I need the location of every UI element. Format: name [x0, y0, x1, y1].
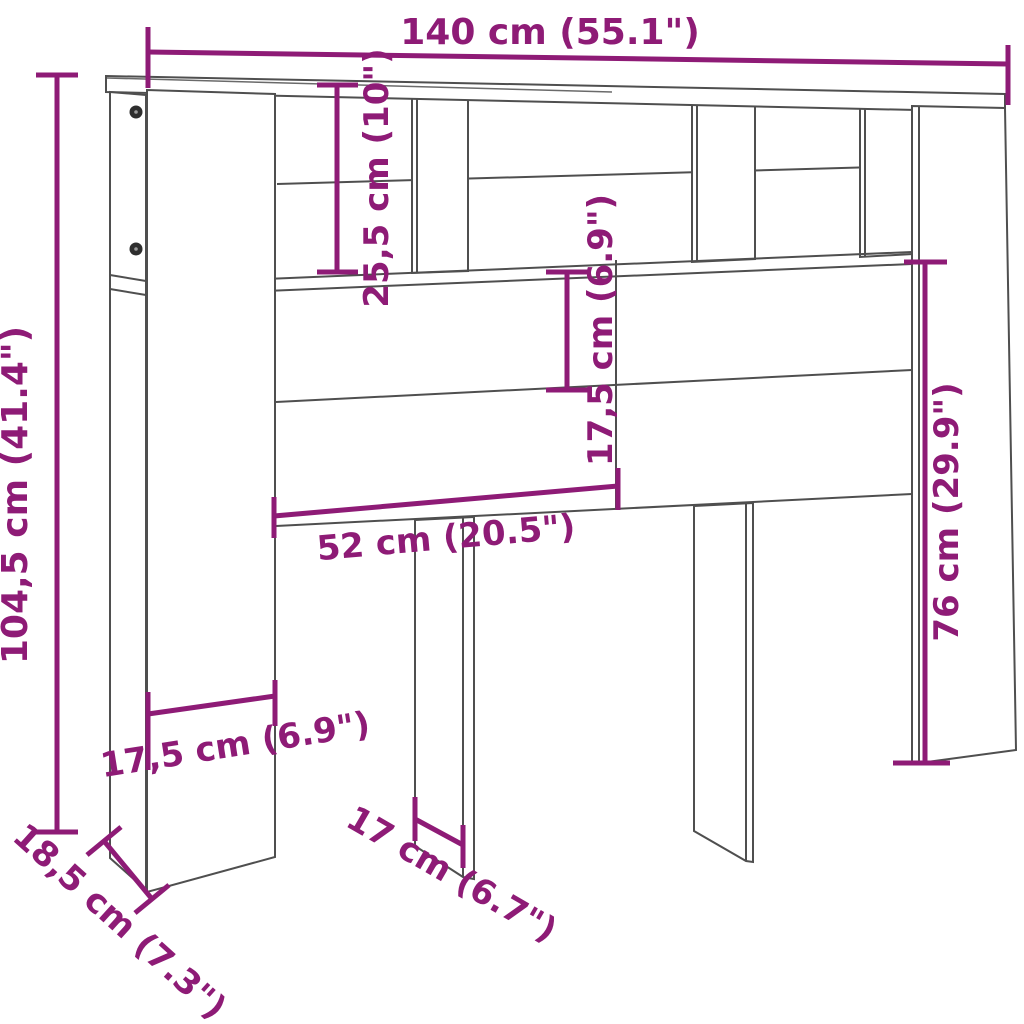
furniture-drawing: [106, 76, 1016, 892]
label-panel-height: 17,5 cm (6.9"): [581, 194, 621, 466]
cubby-divider-a: [412, 97, 468, 273]
screw-icon: [130, 106, 143, 119]
dim-shelf-height: [317, 85, 358, 272]
label-overall-height: 104,5 cm (41.4"): [0, 326, 36, 664]
middle-leg-right: [694, 503, 753, 862]
label-leg-height: 76 cm (29.9"): [927, 382, 967, 641]
label-overall-width: 140 cm (55.1"): [400, 12, 700, 53]
headboard-diagram-svg: 140 cm (55.1") 104,5 cm (41.4") 25,5 cm …: [0, 0, 1024, 1024]
cubby-divider-b: [692, 102, 755, 262]
label-shelf-height: 25,5 cm (10"): [357, 48, 397, 307]
screw-icon: [130, 243, 143, 256]
dimension-diagram: 140 cm (55.1") 104,5 cm (41.4") 25,5 cm …: [0, 0, 1024, 1024]
dim-overall-height: [36, 75, 78, 832]
cubby-divider-c: [860, 105, 912, 257]
